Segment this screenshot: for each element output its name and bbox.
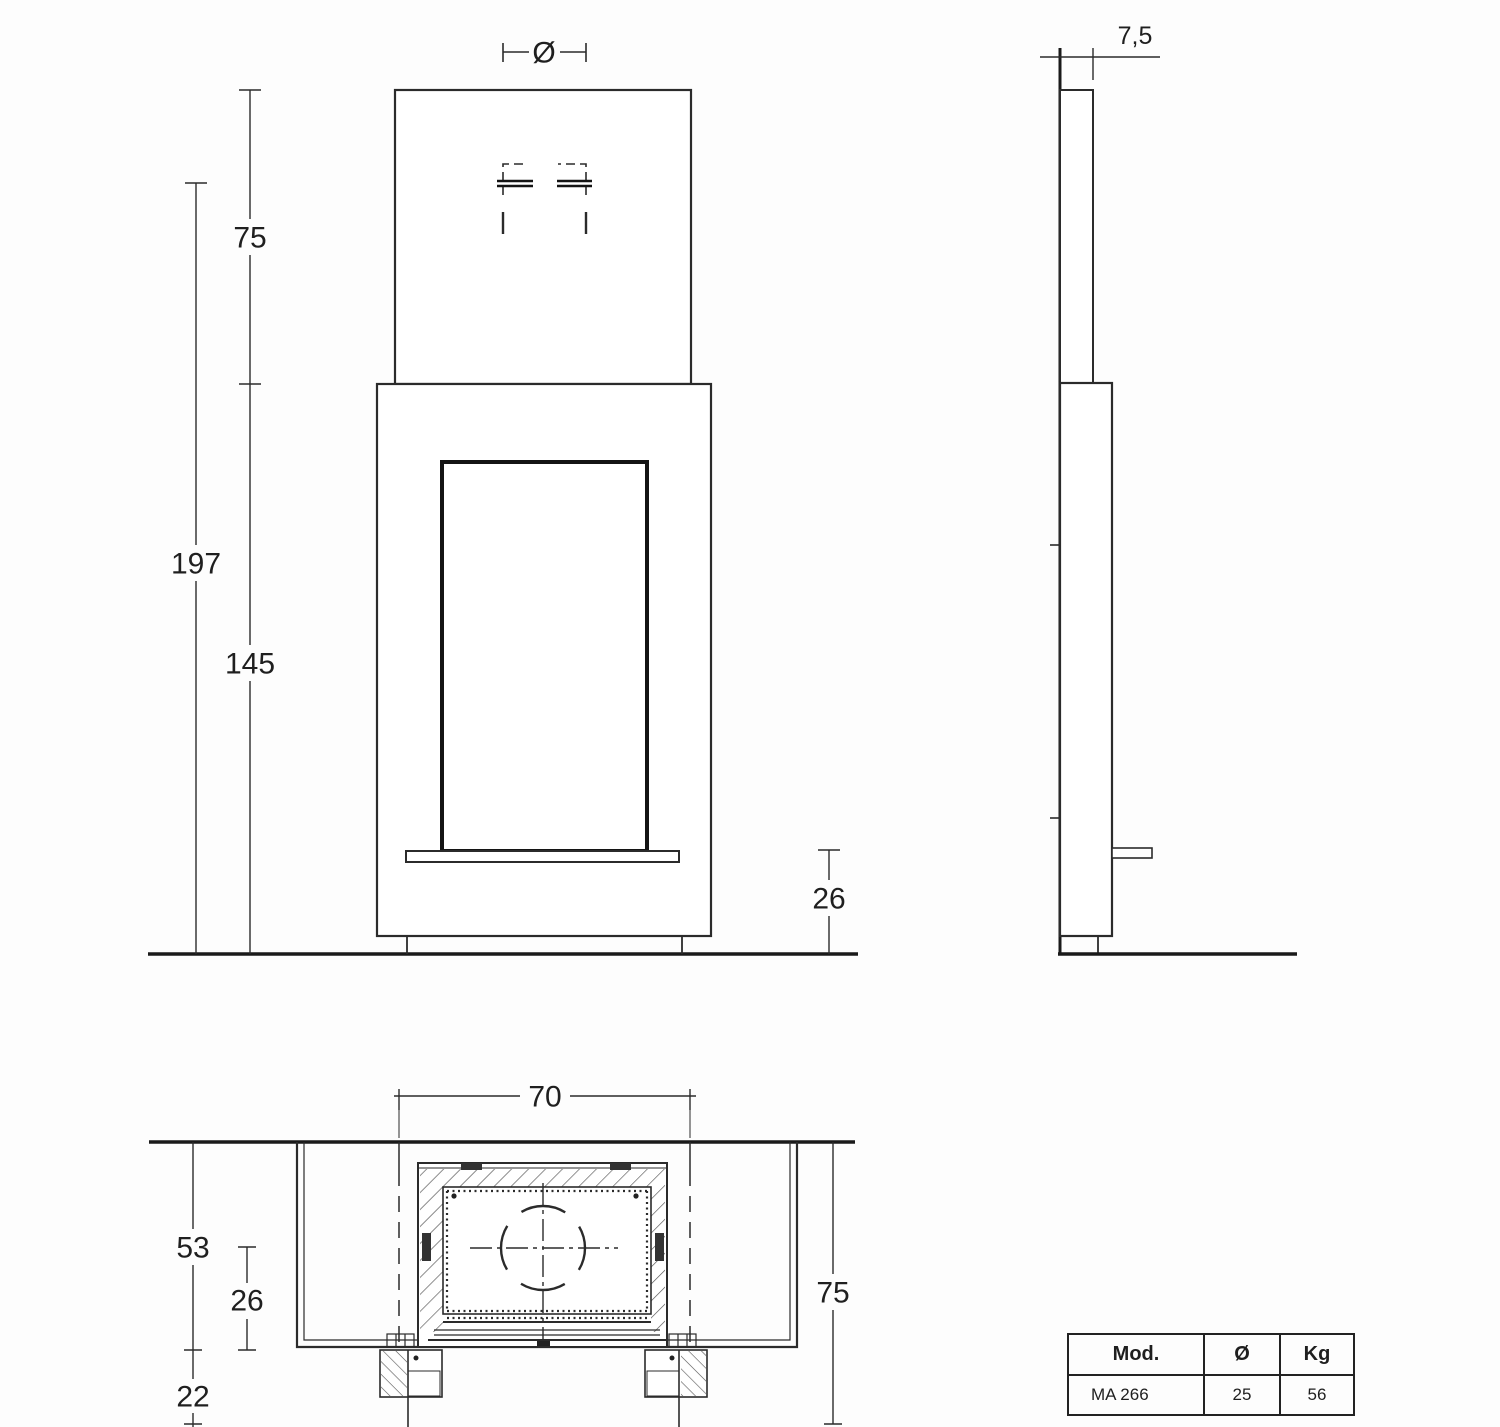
- dim-flue-diameter: Ø: [503, 37, 586, 70]
- dim-wall-to-front-label: 53: [176, 1232, 209, 1265]
- spec-header-diameter: Ø: [1205, 1335, 1281, 1374]
- spec-header-mod: Mod.: [1069, 1335, 1205, 1374]
- dim-hearth-overhang-label: 22: [176, 1381, 209, 1414]
- dim-body-height-label: 145: [225, 648, 275, 681]
- plan-slot-right: [655, 1233, 664, 1261]
- plan-foot-left: [380, 1350, 442, 1427]
- plan-foot-right: [645, 1350, 707, 1427]
- dim-chimney-height: 75: [227, 90, 273, 384]
- plan-screw-left: [451, 1193, 456, 1198]
- front-firebox-opening: [442, 462, 647, 851]
- dim-total-depth-label: 75: [816, 1277, 849, 1310]
- spec-table: Mod. Ø Kg MA 266 25 56: [1067, 1333, 1355, 1416]
- side-chimney-outline: [1060, 90, 1093, 383]
- spec-table-header-row: Mod. Ø Kg: [1069, 1335, 1353, 1376]
- dim-wall-clearance-label: 7,5: [1118, 22, 1153, 50]
- front-plinth: [407, 936, 682, 954]
- front-chimney-outline: [395, 90, 691, 384]
- dim-flue-diameter-label: Ø: [532, 37, 555, 70]
- side-hearth-shelf: [1112, 848, 1152, 858]
- dim-hearth-height-label: 26: [812, 883, 845, 916]
- spec-header-weight: Kg: [1281, 1335, 1353, 1374]
- plan-top-tab-left: [461, 1163, 482, 1170]
- side-view: 7,5: [1040, 22, 1297, 954]
- plan-slot-left: [422, 1233, 431, 1261]
- dim-wall-to-front: 53: [169, 1142, 217, 1350]
- dim-wall-clearance: 7,5: [1040, 22, 1160, 80]
- spec-table-data-row: MA 266 25 56: [1069, 1376, 1353, 1415]
- spec-value-model: MA 266: [1069, 1376, 1205, 1415]
- dim-hearth-height: 26: [806, 850, 852, 954]
- front-hearth-shelf: [406, 851, 679, 862]
- dim-front-width: 70: [394, 1079, 696, 1138]
- dim-total-height: 197: [165, 183, 229, 954]
- dim-body-height: 145: [219, 384, 281, 954]
- plan-view: 70 53 26 22 75: [149, 1079, 857, 1427]
- dim-chimney-height-label: 75: [233, 222, 266, 255]
- plan-screw-right: [633, 1193, 638, 1198]
- dim-front-width-label: 70: [528, 1081, 561, 1114]
- dim-total-depth: 75: [809, 1142, 857, 1424]
- dim-flue-center-label: 26: [230, 1285, 263, 1318]
- dim-flue-center: 26: [223, 1247, 271, 1350]
- front-view: Ø 75 197 145 26: [148, 37, 858, 955]
- side-body-outline: [1060, 383, 1112, 936]
- spec-value-weight: 56: [1281, 1376, 1353, 1415]
- dim-total-height-label: 197: [171, 548, 221, 581]
- dim-hearth-overhang: 22: [169, 1350, 217, 1427]
- plan-top-tab-right: [610, 1163, 631, 1170]
- fireplace-technical-drawing: Ø 75 197 145 26: [0, 0, 1500, 1427]
- spec-value-diameter: 25: [1205, 1376, 1281, 1415]
- drawing-canvas: Ø 75 197 145 26: [0, 0, 1500, 1427]
